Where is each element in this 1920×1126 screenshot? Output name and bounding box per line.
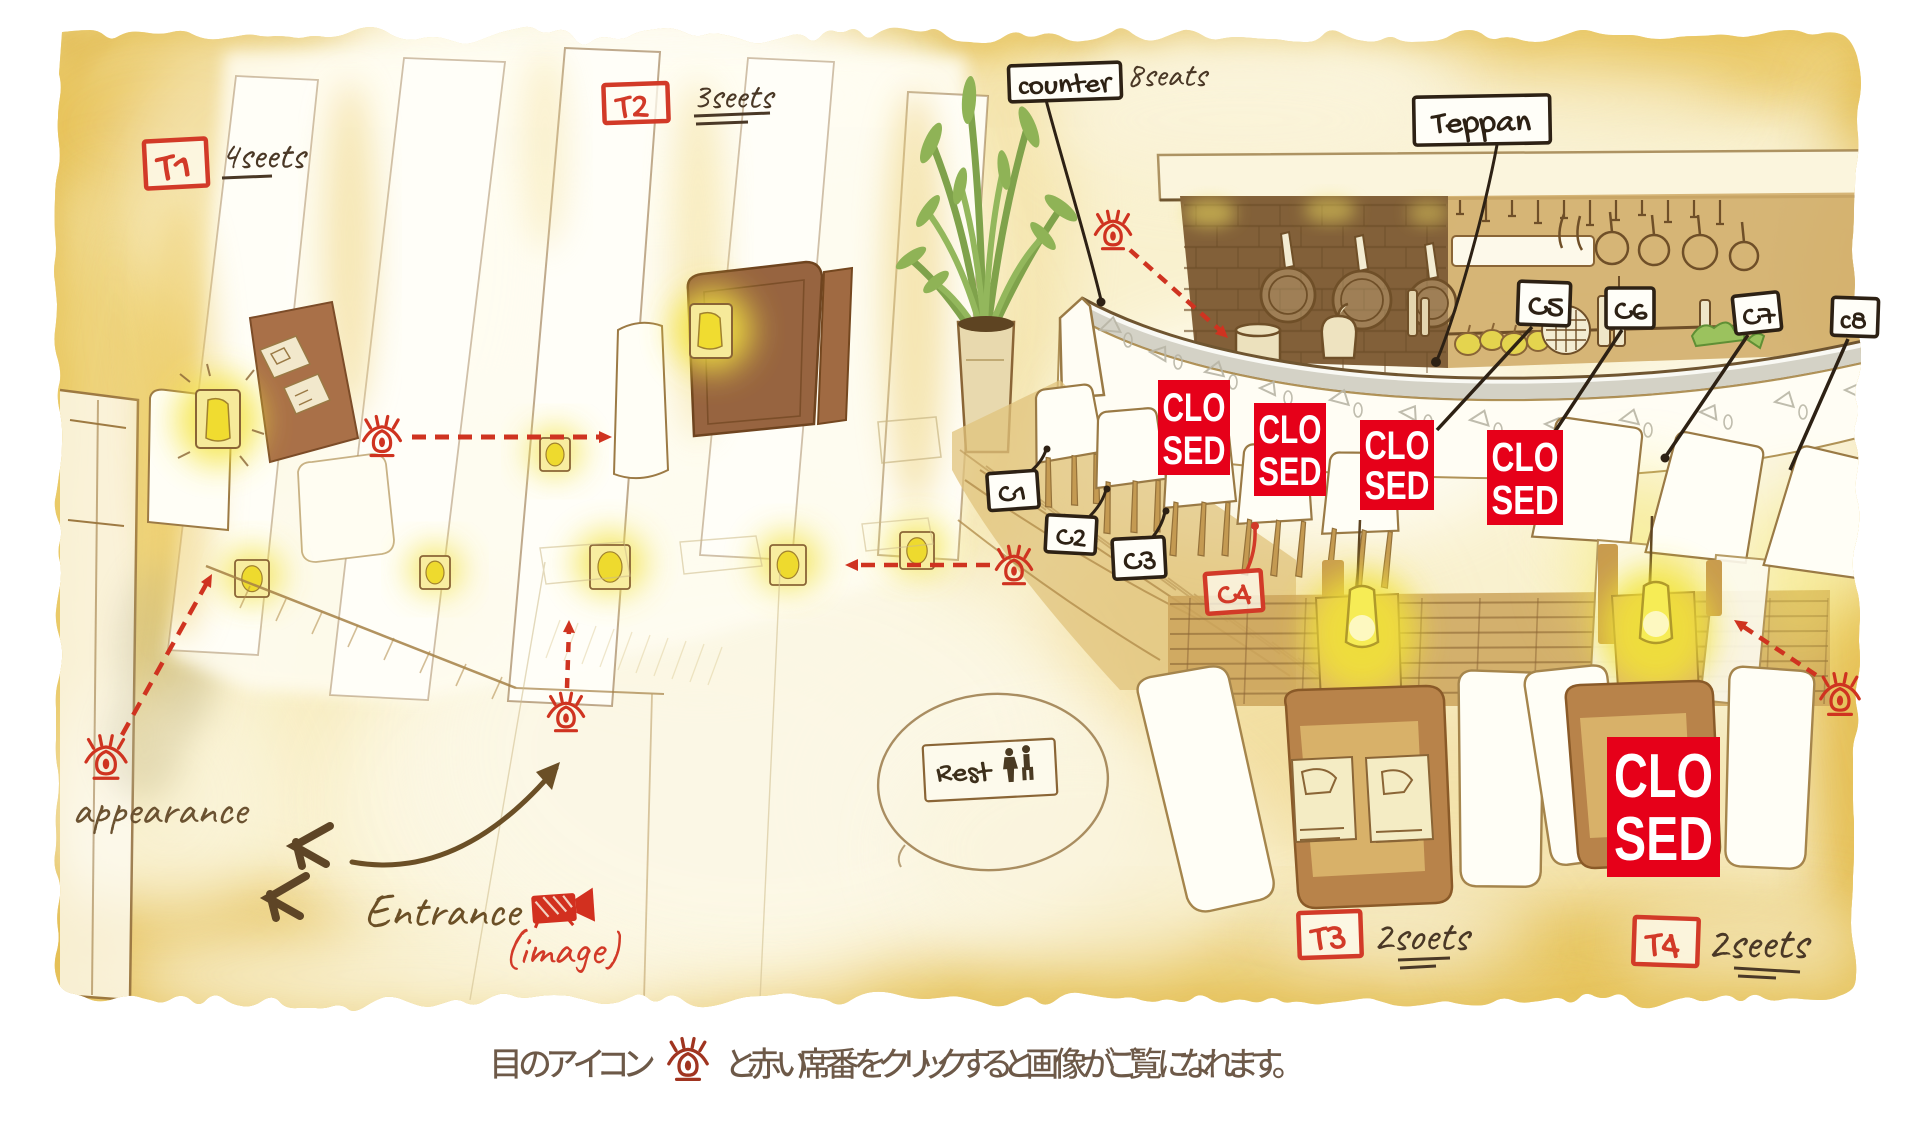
- svg-text:CLO: CLO: [1365, 424, 1430, 468]
- svg-text:CLO: CLO: [1163, 386, 1226, 430]
- svg-text:SED: SED: [1365, 464, 1430, 508]
- svg-text:CLO: CLO: [1259, 408, 1322, 452]
- svg-text:SED: SED: [1163, 429, 1226, 473]
- svg-text:SED: SED: [1259, 450, 1322, 494]
- svg-text:CLO: CLO: [1614, 742, 1713, 811]
- svg-text:CLO: CLO: [1492, 434, 1559, 480]
- svg-text:SED: SED: [1614, 805, 1713, 874]
- svg-text:SED: SED: [1492, 477, 1559, 523]
